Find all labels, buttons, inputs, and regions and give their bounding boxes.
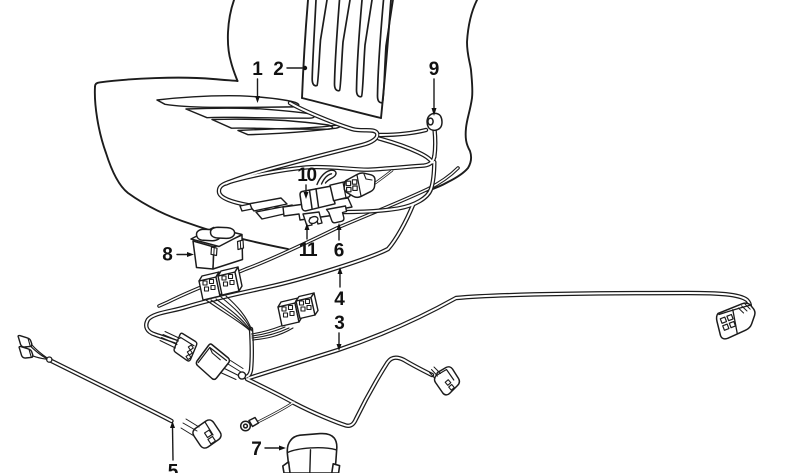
svg-text:10: 10 [297,165,316,186]
svg-text:8: 8 [162,245,173,266]
svg-text:1: 1 [252,59,263,80]
svg-text:4: 4 [334,289,345,310]
svg-text:2: 2 [273,59,284,80]
svg-text:11: 11 [299,240,318,261]
svg-text:6: 6 [334,241,345,262]
svg-text:9: 9 [429,59,440,80]
svg-text:7: 7 [251,439,262,460]
svg-text:5: 5 [168,462,179,473]
svg-text:3: 3 [334,313,345,334]
